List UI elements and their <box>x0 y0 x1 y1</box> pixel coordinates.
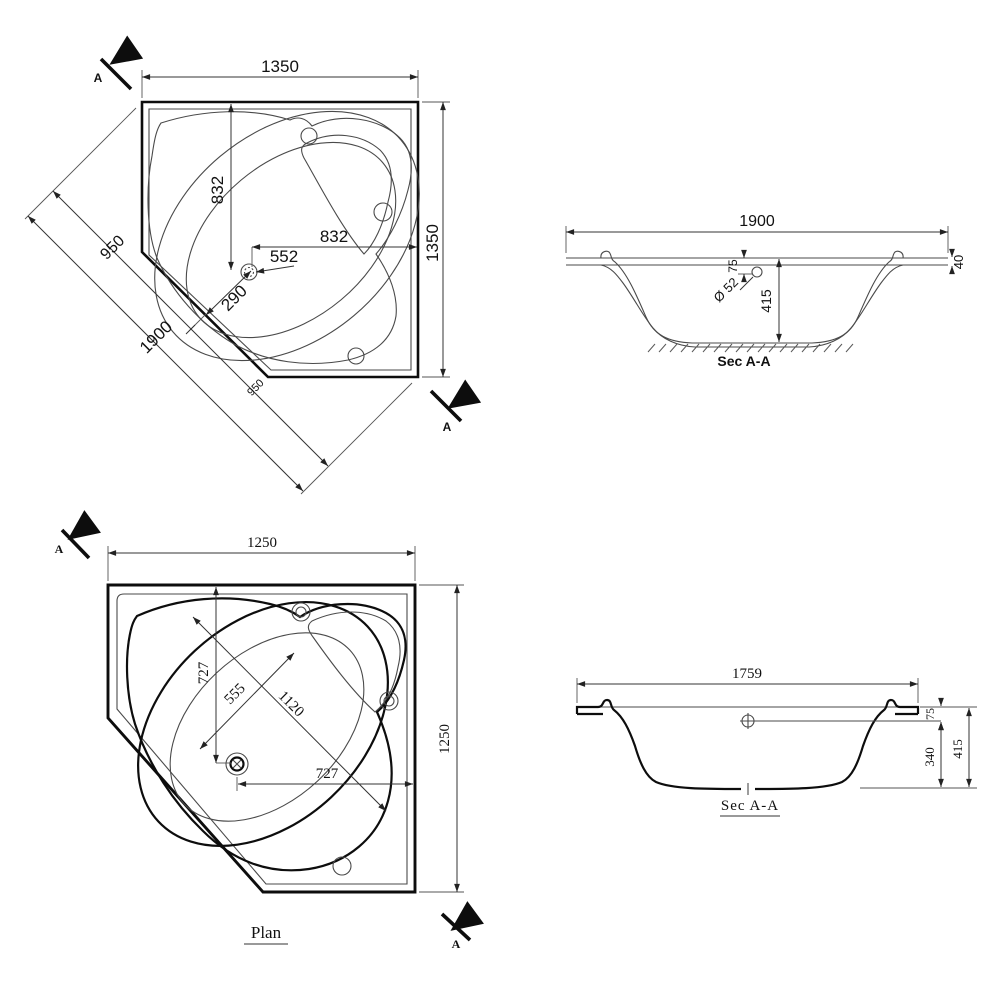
section-letter: A <box>443 420 452 434</box>
plan-small-dimensions: 1250 1250 727 727 555 1120 <box>108 535 464 892</box>
dim-drain-to-edge-label: 290 <box>217 281 250 314</box>
dim-drain-offset-label: 552 <box>270 247 298 266</box>
dim-total-depth-label: 415 <box>950 739 965 759</box>
section-marker-large-bottom: A <box>431 391 466 434</box>
dim-diag-half-upper-label: 950 <box>97 232 128 263</box>
dim-center-vertical-label: 727 <box>196 661 212 684</box>
section-large-profile <box>566 251 948 352</box>
dim-drain-diameter-label: Ø 52 <box>711 275 742 306</box>
dim-depth-label: 415 <box>758 289 774 313</box>
drawing-sheet: 1350 1350 832 832 552 290 <box>0 0 1000 1000</box>
section-arrow-icon <box>112 52 128 63</box>
plan-small-title: Plan <box>251 923 282 942</box>
dim-top-width-label: 1250 <box>247 535 277 551</box>
section-letter: A <box>55 542 64 556</box>
drain-hole-icon <box>752 267 762 277</box>
dim-top-width-label: 1350 <box>261 57 299 76</box>
plan-view-small: 1250 1250 727 727 555 1120 A <box>55 527 470 951</box>
overflow-bump-icon <box>333 857 351 875</box>
plan-large-tub-outline <box>106 61 468 412</box>
drain-icon <box>241 264 257 280</box>
dim-center-vertical-label: 832 <box>208 176 227 204</box>
jet-right-icon <box>374 203 392 221</box>
section-letter: A <box>94 71 103 85</box>
section-small-dimensions: 1759 75 340 415 <box>577 666 977 788</box>
plan-view-large: 1350 1350 832 832 552 290 <box>25 52 468 494</box>
section-arrow-icon <box>453 918 468 929</box>
dim-diag-length-label: 1120 <box>275 688 307 720</box>
section-marker-small-bottom: A <box>442 914 470 951</box>
section-arrow-icon <box>450 396 466 407</box>
dim-diag-half-lower-label: 950 <box>245 377 266 398</box>
plan-large-dimensions: 1350 1350 832 832 552 290 <box>25 57 450 494</box>
dim-right-height-label: 1250 <box>437 724 453 754</box>
section-large-title: Sec A-A <box>717 353 770 369</box>
dim-width-label: 1759 <box>732 666 762 682</box>
section-marker-large-top: A <box>94 52 131 89</box>
dim-center-horizontal-label: 832 <box>320 227 348 246</box>
plan-small-tub-outline <box>90 553 436 894</box>
section-small-title: Sec A-A <box>721 798 779 814</box>
dim-rim-thickness-label: 40 <box>951 255 966 269</box>
drawing-canvas: 1350 1350 832 832 552 290 <box>0 0 1000 1000</box>
section-small-profile <box>577 700 941 795</box>
section-large-dimensions: 1900 Ø 52 75 415 40 <box>566 213 966 342</box>
section-letter: A <box>452 937 461 951</box>
dim-right-height-label: 1350 <box>423 224 442 262</box>
section-small-title-group: Sec A-A <box>720 798 780 816</box>
dim-width-label: 1900 <box>739 213 775 230</box>
plan-small-title-group: Plan <box>244 923 288 944</box>
dim-rim-to-drain-label: 75 <box>726 259 740 273</box>
dim-rim-to-center-label: 75 <box>923 708 937 720</box>
section-view-large: 1900 Ø 52 75 415 40 Sec A-A <box>566 213 966 369</box>
section-marker-small-top: A <box>55 527 89 558</box>
section-view-small: 1759 75 340 415 Sec A-A <box>577 666 977 816</box>
dim-inner-depth-label: 340 <box>922 747 937 767</box>
section-arrow-icon <box>70 527 85 538</box>
dim-center-horizontal-label: 727 <box>316 766 339 782</box>
dim-diag-total-label: 1900 <box>136 317 176 357</box>
